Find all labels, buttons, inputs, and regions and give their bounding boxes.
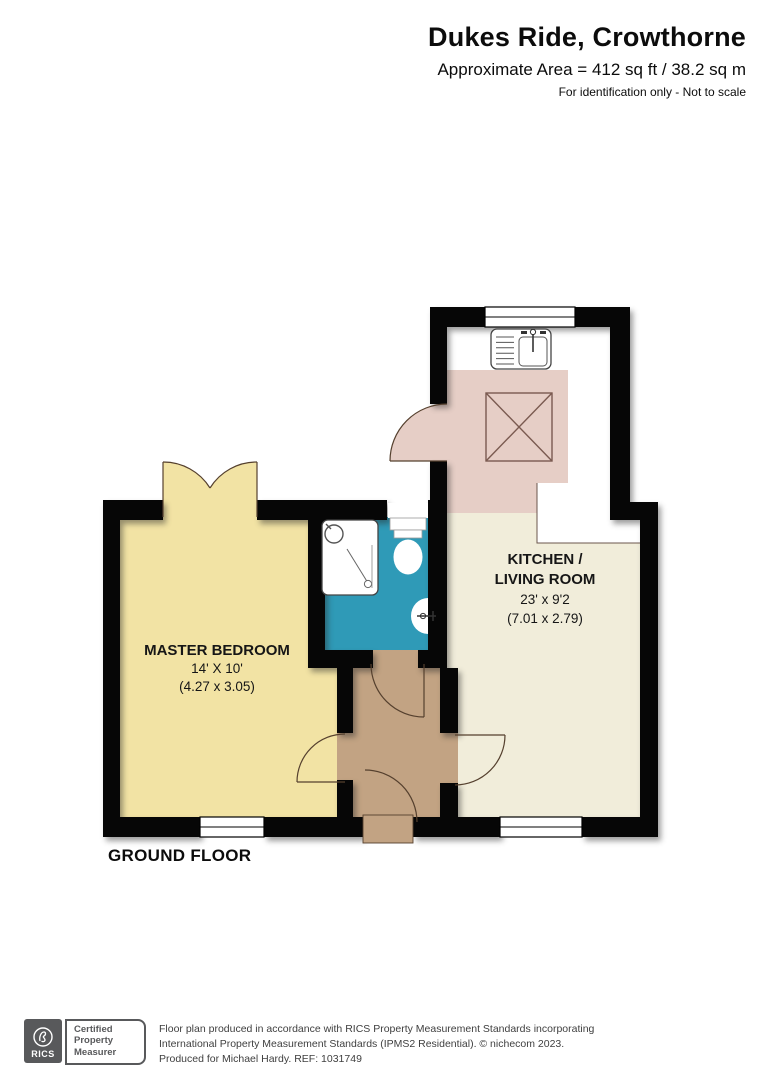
kitchen-exterior-door-sweep [390, 404, 447, 461]
living-room-window [500, 817, 582, 837]
rics-logo: RICS [24, 1019, 62, 1063]
french-doors-sweep [163, 462, 257, 517]
hall-door-gap-bedroom [337, 733, 353, 780]
kitchen-sink [491, 329, 551, 369]
badge-line-3: Measurer [74, 1047, 144, 1058]
front-door-leaf [363, 815, 413, 843]
master-bedroom-dims: 14' X 10' [191, 661, 243, 676]
floor-label: GROUND FLOOR [108, 846, 251, 866]
footer-line-2: International Property Measurement Stand… [159, 1037, 594, 1052]
kitchen-dims: 23' x 9'2 [520, 592, 569, 607]
badge-line-1: Certified [74, 1024, 144, 1035]
certified-property-measurer-badge: Certified Property Measurer [65, 1019, 146, 1065]
hall-door-gap-living [440, 733, 458, 783]
kitchen-dims-metric: (7.01 x 2.79) [507, 611, 583, 626]
hall-door-gap-bathroom [373, 650, 418, 668]
master-bedroom-dims-metric: (4.27 x 3.05) [179, 679, 255, 694]
kitchen-label-line1: KITCHEN / [508, 551, 584, 568]
floor-plan: MASTER BEDROOM 14' X 10' (4.27 x 3.05) K… [0, 0, 764, 1080]
badge-line-2: Property [74, 1035, 144, 1046]
bedroom-window [200, 817, 264, 837]
hallway-floor [353, 668, 440, 817]
footer-disclaimer: Floor plan produced in accordance with R… [159, 1019, 594, 1067]
footer: RICS Certified Property Measurer Floor p… [24, 1019, 594, 1067]
master-bedroom-label: MASTER BEDROOM [144, 642, 290, 659]
footer-line-3: Produced for Michael Hardy. REF: 1031749 [159, 1052, 594, 1067]
footer-line-1: Floor plan produced in accordance with R… [159, 1022, 594, 1037]
rics-emblem-icon [32, 1026, 54, 1048]
kitchen-label-line2: LIVING ROOM [495, 571, 596, 588]
kitchen-top-window [485, 307, 575, 327]
rics-wordmark: RICS [31, 1049, 55, 1059]
shower-tray [322, 520, 378, 595]
